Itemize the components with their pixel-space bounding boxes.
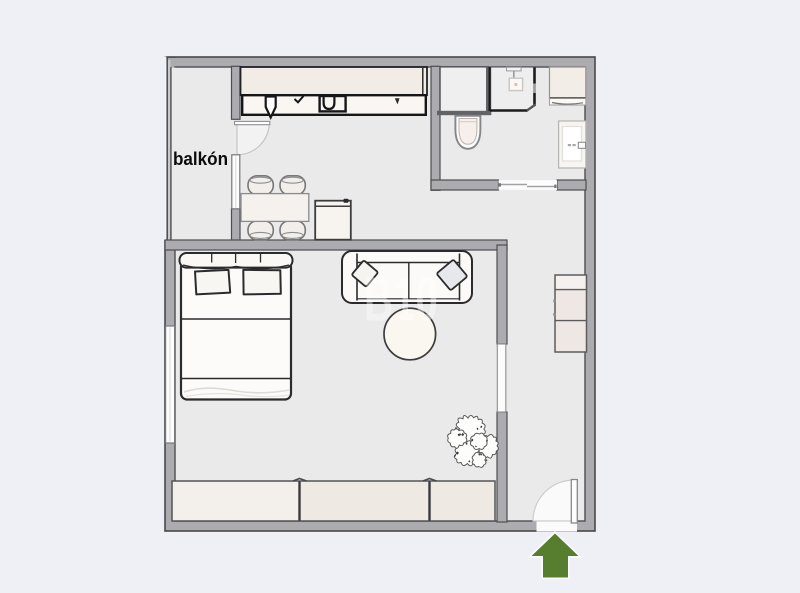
svg-text:balkón: balkón [173,149,228,169]
svg-text:B10: B10 [364,266,438,335]
